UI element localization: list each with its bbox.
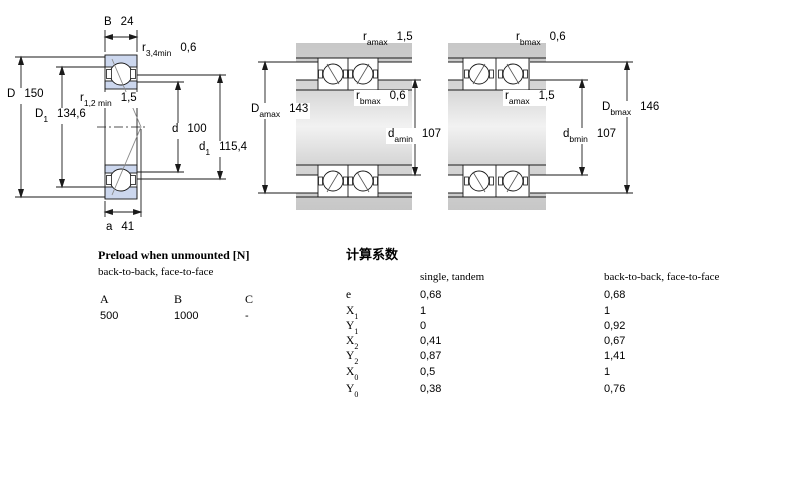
factor-symbol: X0 <box>346 366 358 380</box>
dim-label-D: D150 <box>5 88 46 104</box>
dim-value: 24 <box>121 16 134 28</box>
preload-value-A: 500 <box>100 310 118 322</box>
dim-label-D1: D1134,6 <box>33 108 88 124</box>
dim-subscript: 1,2 min <box>84 98 112 108</box>
factor-symbol: Y2 <box>346 350 358 364</box>
preload-title: Preload when unmounted [N] <box>98 249 249 262</box>
dim-symbol: D <box>7 88 15 100</box>
dim-value: 1,5 <box>539 90 555 102</box>
dim-label-r34: r3,4min0,6 <box>142 42 196 58</box>
ball <box>110 63 132 85</box>
dim-subscript: amin <box>394 134 412 144</box>
preload-col-C: C <box>245 293 253 306</box>
factor-value-single: 0,87 <box>420 350 441 362</box>
dim-subscript: amax <box>367 37 388 47</box>
dim-value: 134,6 <box>57 108 86 120</box>
factor-symbol: X1 <box>346 305 358 319</box>
factor-value-single: 0,41 <box>420 335 441 347</box>
dim-label-ramax-mid: ramax1,5 <box>363 31 413 47</box>
factor-symbol: Y0 <box>346 383 358 397</box>
preload-subtitle: back-to-back, face-to-face <box>98 266 213 278</box>
dim-label-rbmax-right: rbmax0,6 <box>516 31 566 47</box>
ball <box>469 171 489 191</box>
dim-label-d: d100 <box>170 123 209 139</box>
preload-value-B: 1000 <box>174 310 198 322</box>
preload-value-C: - <box>245 310 249 322</box>
dim-label-ramax-right: ramax1,5 <box>503 90 557 106</box>
ball <box>110 169 132 191</box>
dim-value: 0,6 <box>550 31 566 43</box>
factor-value-paired: 1 <box>604 305 610 317</box>
dim-subscript: amax <box>259 109 280 119</box>
factor-value-single: 1 <box>420 305 426 317</box>
factor-value-single: 0,68 <box>420 289 441 301</box>
preload-col-B: B <box>174 293 182 306</box>
dim-label-damin: damin107 <box>386 128 443 144</box>
dim-label-B: B24 <box>104 16 133 32</box>
dim-value: 41 <box>121 221 134 233</box>
factor-symbol: e <box>346 289 351 303</box>
dim-value: 0,6 <box>390 90 406 102</box>
dim-label-r12: r1,2 min1,5 <box>78 92 139 108</box>
dim-subscript: 1 <box>205 147 210 157</box>
dim-subscript: 1 <box>43 114 48 124</box>
factors-col1-header: single, tandem <box>420 271 484 283</box>
dim-subscript: bmax <box>520 37 541 47</box>
factor-value-paired: 0,76 <box>604 383 625 395</box>
factor-symbol: Y1 <box>346 320 358 334</box>
bearing-datasheet-page: B24 r3,4min0,6 D150 r1,2 min1,5 D1134,6 … <box>0 0 800 500</box>
factor-value-paired: 0,68 <box>604 289 625 301</box>
dim-symbol: a <box>106 221 112 233</box>
single-bearing-cross-section <box>97 55 146 199</box>
dim-value: 107 <box>597 128 616 140</box>
dim-value: 100 <box>187 123 206 135</box>
preload-col-A: A <box>100 293 109 306</box>
dim-value: 1,5 <box>397 31 413 43</box>
factor-symbol: X2 <box>346 335 358 349</box>
paired-arrangement-b <box>448 43 633 210</box>
dim-label-rbmax-mid: rbmax0,6 <box>354 90 408 106</box>
dim-label-a: a41 <box>106 221 134 237</box>
dim-subscript: amax <box>509 96 530 106</box>
dim-value: 1,5 <box>121 92 137 104</box>
factor-value-single: 0,38 <box>420 383 441 395</box>
ball <box>503 171 523 191</box>
factor-value-single: 0 <box>420 320 426 332</box>
dim-subscript: bmax <box>360 96 381 106</box>
factors-title: 计算系数 <box>346 248 398 262</box>
ball <box>323 171 343 191</box>
dim-value: 150 <box>24 88 43 100</box>
dim-symbol: B <box>104 16 112 28</box>
dim-label-d1: d1115,4 <box>197 141 249 157</box>
factor-value-single: 0,5 <box>420 366 435 378</box>
paired-arrangement-a <box>258 43 421 210</box>
dim-value: 143 <box>289 103 308 115</box>
dim-label-Damax: Damax143 <box>249 103 310 119</box>
dim-subscript: 3,4min <box>146 48 172 58</box>
factor-value-paired: 1 <box>604 366 610 378</box>
dim-value: 107 <box>422 128 441 140</box>
factor-value-paired: 1,41 <box>604 350 625 362</box>
factors-col2-header: back-to-back, face-to-face <box>604 271 719 283</box>
dim-value: 146 <box>640 101 659 113</box>
dim-value: 115,4 <box>219 141 247 153</box>
dim-label-Dbmax: Dbmax146 <box>600 101 661 117</box>
dim-symbol: d <box>172 123 178 135</box>
factor-value-paired: 0,67 <box>604 335 625 347</box>
dim-subscript: bmax <box>610 107 631 117</box>
dim-value: 0,6 <box>180 42 196 54</box>
dim-subscript: bmin <box>569 134 587 144</box>
dim-label-dbmin: dbmin107 <box>561 128 618 144</box>
ball <box>353 171 373 191</box>
factor-value-paired: 0,92 <box>604 320 625 332</box>
